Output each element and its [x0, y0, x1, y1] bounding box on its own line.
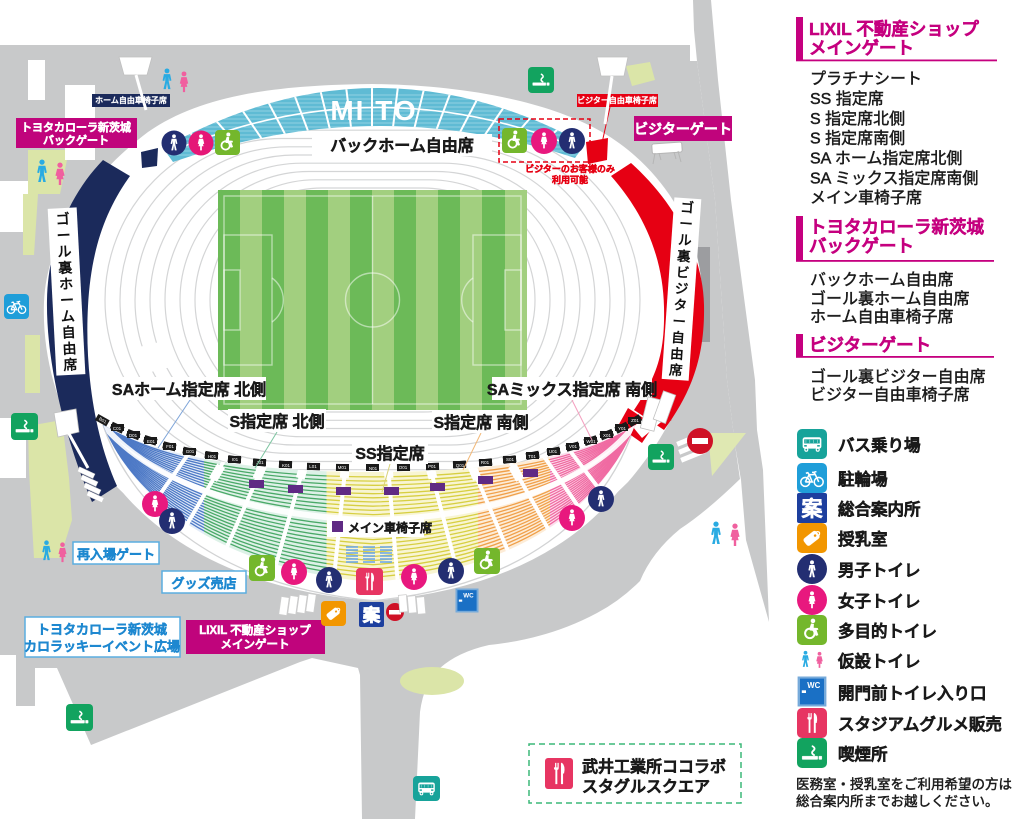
svg-text:喫煙所: 喫煙所: [838, 745, 888, 764]
svg-text:ゴール裏ホーム自由席: ゴール裏ホーム自由席: [810, 289, 970, 308]
svg-text:I01: I01: [232, 457, 239, 462]
svg-text:E01: E01: [147, 439, 156, 444]
svg-text:H01: H01: [208, 454, 217, 459]
svg-text:ビジターのお客様のみ: ビジターのお客様のみ: [525, 163, 615, 174]
svg-text:MI TO: MI TO: [330, 95, 417, 126]
svg-text:女子トイレ: 女子トイレ: [838, 591, 921, 611]
svg-text:K01: K01: [282, 463, 291, 468]
svg-text:C01: C01: [113, 426, 122, 431]
svg-text:メインゲート: メインゲート: [809, 38, 914, 58]
svg-text:トヨタカローラ新茨城: トヨタカローラ新茨城: [21, 120, 131, 134]
svg-text:F01: F01: [166, 444, 174, 449]
svg-text:バックホーム自由席: バックホーム自由席: [810, 271, 954, 289]
svg-text:駐輪場: 駐輪場: [838, 469, 888, 489]
svg-text:再入場ゲート: 再入場ゲート: [77, 547, 155, 562]
svg-text:トヨタカローラ新茨城: トヨタカローラ新茨城: [809, 217, 984, 237]
svg-text:バス乗り場: バス乗り場: [838, 436, 921, 455]
svg-text:SS指定席: SS指定席: [355, 444, 424, 463]
svg-text:授乳室: 授乳室: [838, 529, 888, 549]
svg-text:V01: V01: [569, 444, 578, 449]
svg-text:SAミックス指定席 南側: SAミックス指定席 南側: [487, 380, 657, 399]
svg-text:U01: U01: [549, 449, 558, 454]
svg-text:案: 案: [801, 497, 824, 521]
svg-text:案: 案: [362, 605, 381, 625]
svg-text:T01: T01: [528, 454, 536, 459]
svg-text:M01: M01: [338, 465, 347, 470]
svg-text:L01: L01: [309, 464, 317, 469]
svg-text:ビジター自由車椅子席: ビジター自由車椅子席: [577, 95, 657, 105]
svg-text:総合案内所までお越しください。: 総合案内所までお越しください。: [796, 793, 999, 809]
svg-text:バックホーム自由席: バックホーム自由席: [330, 136, 474, 155]
svg-text:ビジター自由車椅子席: ビジター自由車椅子席: [810, 386, 970, 404]
svg-text:SAホーム指定席 北側: SAホーム指定席 北側: [112, 380, 266, 399]
svg-text:S指定席 南側: S指定席 南側: [433, 413, 528, 432]
svg-text:S01: S01: [506, 457, 515, 462]
svg-text:W01: W01: [586, 439, 596, 444]
svg-text:S 指定席北側: S 指定席北側: [810, 110, 905, 128]
svg-text:ホーム自由車椅子席: ホーム自由車椅子席: [810, 308, 954, 326]
svg-text:SS 指定席: SS 指定席: [810, 90, 884, 108]
svg-text:メイン車椅子席: メイン車椅子席: [348, 520, 432, 535]
svg-text:スタグルスクエア: スタグルスクエア: [582, 777, 710, 796]
svg-text:カロラッキーイベント広場: カロラッキーイベント広場: [24, 639, 180, 654]
svg-text:開門前トイレ入り口: 開門前トイレ入り口: [838, 683, 987, 703]
svg-text:総合案内所: 総合案内所: [838, 499, 921, 519]
svg-text:グッズ売店: グッズ売店: [171, 576, 236, 591]
svg-text:Q01: Q01: [456, 463, 465, 468]
svg-text:O01: O01: [399, 465, 408, 470]
svg-text:武井工業所ココラボ: 武井工業所ココラボ: [582, 757, 726, 776]
svg-text:ホーム自由車椅子席: ホーム自由車椅子席: [95, 95, 167, 105]
svg-text:男子トイレ: 男子トイレ: [838, 561, 921, 580]
svg-text:LIXIL 不動産ショップ: LIXIL 不動産ショップ: [809, 19, 979, 39]
svg-text:多目的トイレ: 多目的トイレ: [838, 621, 937, 641]
svg-text:S 指定席南側: S 指定席南側: [810, 130, 905, 148]
svg-text:R01: R01: [481, 460, 490, 465]
svg-text:医務室・授乳室をご利用希望の方は: 医務室・授乳室をご利用希望の方は: [796, 776, 1012, 792]
svg-text:仮設トイレ: 仮設トイレ: [837, 651, 921, 671]
svg-text:メインゲート: メインゲート: [221, 637, 290, 651]
svg-text:利用可能: 利用可能: [551, 174, 588, 185]
svg-text:バックゲート: バックゲート: [43, 133, 109, 147]
svg-text:ゴール裏ビジター自由席: ゴール裏ビジター自由席: [810, 367, 986, 386]
svg-text:LIXIL 不動産ショップ: LIXIL 不動産ショップ: [199, 623, 311, 637]
svg-text:S指定席 北側: S指定席 北側: [229, 412, 324, 431]
svg-text:SA ミックス指定席南側: SA ミックス指定席南側: [810, 170, 978, 188]
svg-text:N01: N01: [369, 466, 378, 471]
svg-text:ビジターゲート: ビジターゲート: [809, 335, 931, 355]
svg-text:スタジアムグルメ販売: スタジアムグルメ販売: [838, 714, 1002, 734]
svg-text:Z01: Z01: [631, 418, 639, 423]
svg-text:X01: X01: [603, 433, 612, 438]
svg-text:バックゲート: バックゲート: [809, 236, 914, 256]
svg-text:G01: G01: [186, 449, 195, 454]
svg-text:プラチナシート: プラチナシート: [810, 70, 922, 88]
svg-text:ビジターゲート: ビジターゲート: [634, 121, 732, 137]
svg-text:D01: D01: [129, 433, 138, 438]
svg-text:P01: P01: [428, 464, 437, 469]
svg-text:メイン車椅子席: メイン車椅子席: [810, 189, 922, 207]
svg-text:Y01: Y01: [618, 426, 627, 431]
svg-text:SA ホーム指定席北側: SA ホーム指定席北側: [810, 150, 962, 168]
svg-text:トヨタカローラ新茨城: トヨタカローラ新茨城: [37, 622, 167, 637]
